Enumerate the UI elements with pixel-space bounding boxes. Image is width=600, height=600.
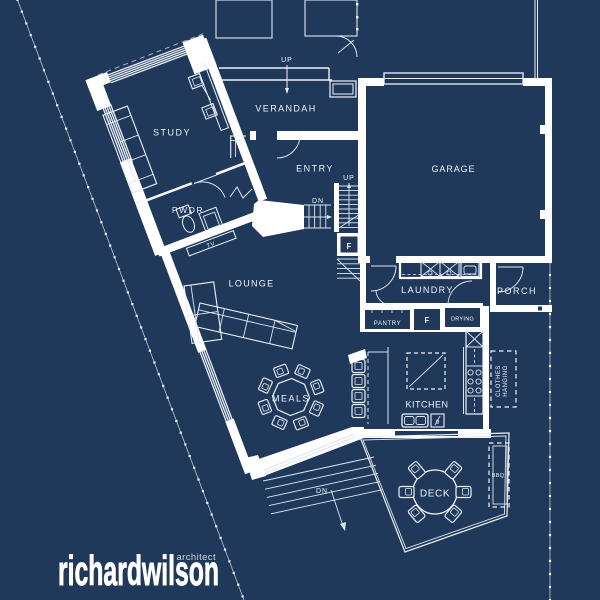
svg-text:DECK: DECK	[420, 489, 450, 500]
svg-text:F: F	[425, 316, 430, 325]
svg-text:UP: UP	[281, 57, 293, 64]
svg-text:ENTRY: ENTRY	[296, 164, 334, 174]
svg-text:DN: DN	[312, 198, 324, 205]
svg-text:UP: UP	[343, 175, 355, 182]
svg-text:richardwilson: richardwilson	[58, 547, 219, 594]
svg-text:PWDR: PWDR	[172, 205, 204, 215]
svg-text:MEALS: MEALS	[272, 394, 310, 404]
svg-text:LOUNGE: LOUNGE	[229, 279, 275, 289]
svg-text:DN: DN	[316, 488, 328, 495]
svg-text:STUDY: STUDY	[153, 128, 191, 138]
svg-text:HANGING: HANGING	[503, 365, 509, 397]
svg-text:PORCH: PORCH	[497, 286, 537, 296]
svg-text:GARAGE: GARAGE	[432, 164, 476, 174]
svg-text:VERANDAH: VERANDAH	[255, 104, 316, 114]
svg-text:KITCHEN: KITCHEN	[405, 400, 448, 410]
svg-text:PANTRY: PANTRY	[374, 321, 401, 327]
svg-text:F: F	[347, 242, 352, 251]
svg-text:CLOTHES: CLOTHES	[496, 365, 502, 397]
svg-text:DRYING: DRYING	[451, 317, 474, 323]
svg-text:BBQ: BBQ	[492, 473, 505, 479]
svg-text:LAUNDRY: LAUNDRY	[401, 285, 454, 295]
